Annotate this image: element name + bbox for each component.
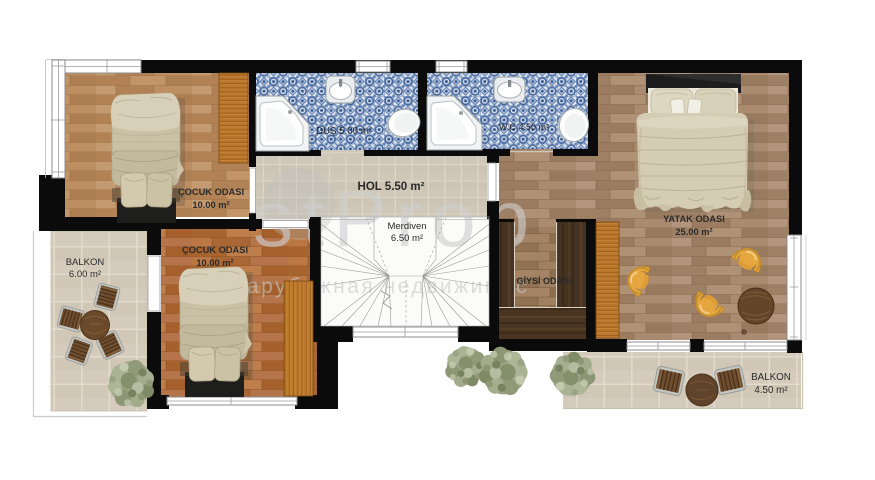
svg-text:Merdiven: Merdiven: [387, 221, 426, 232]
svg-text:YATAK ODASI: YATAK ODASI: [663, 214, 725, 224]
svg-text:6.00 m²: 6.00 m²: [69, 269, 101, 280]
svg-text:HOL 5.50 m²: HOL 5.50 m²: [358, 181, 425, 193]
svg-text:W.C 4.50 m²: W.C 4.50 m²: [499, 122, 549, 132]
svg-text:BALKON: BALKON: [66, 257, 105, 268]
svg-text:ÇOCUK ODASI: ÇOCUK ODASI: [178, 187, 244, 197]
svg-text:25.00 m²: 25.00 m²: [675, 227, 712, 237]
svg-text:GİYSİ ODASI: GİYSİ ODASI: [516, 276, 571, 286]
svg-text:DUŞ 5.00 m²: DUŞ 5.00 m²: [316, 126, 373, 137]
svg-text:BALKON: BALKON: [751, 372, 791, 383]
svg-text:6.50 m²: 6.50 m²: [391, 233, 423, 244]
svg-text:10.00 m²: 10.00 m²: [196, 258, 233, 268]
svg-text:ÇOCUK ODASI: ÇOCUK ODASI: [182, 245, 248, 255]
svg-text:4.50 m²: 4.50 m²: [754, 385, 788, 396]
svg-text:10.00 m²: 10.00 m²: [192, 200, 229, 210]
